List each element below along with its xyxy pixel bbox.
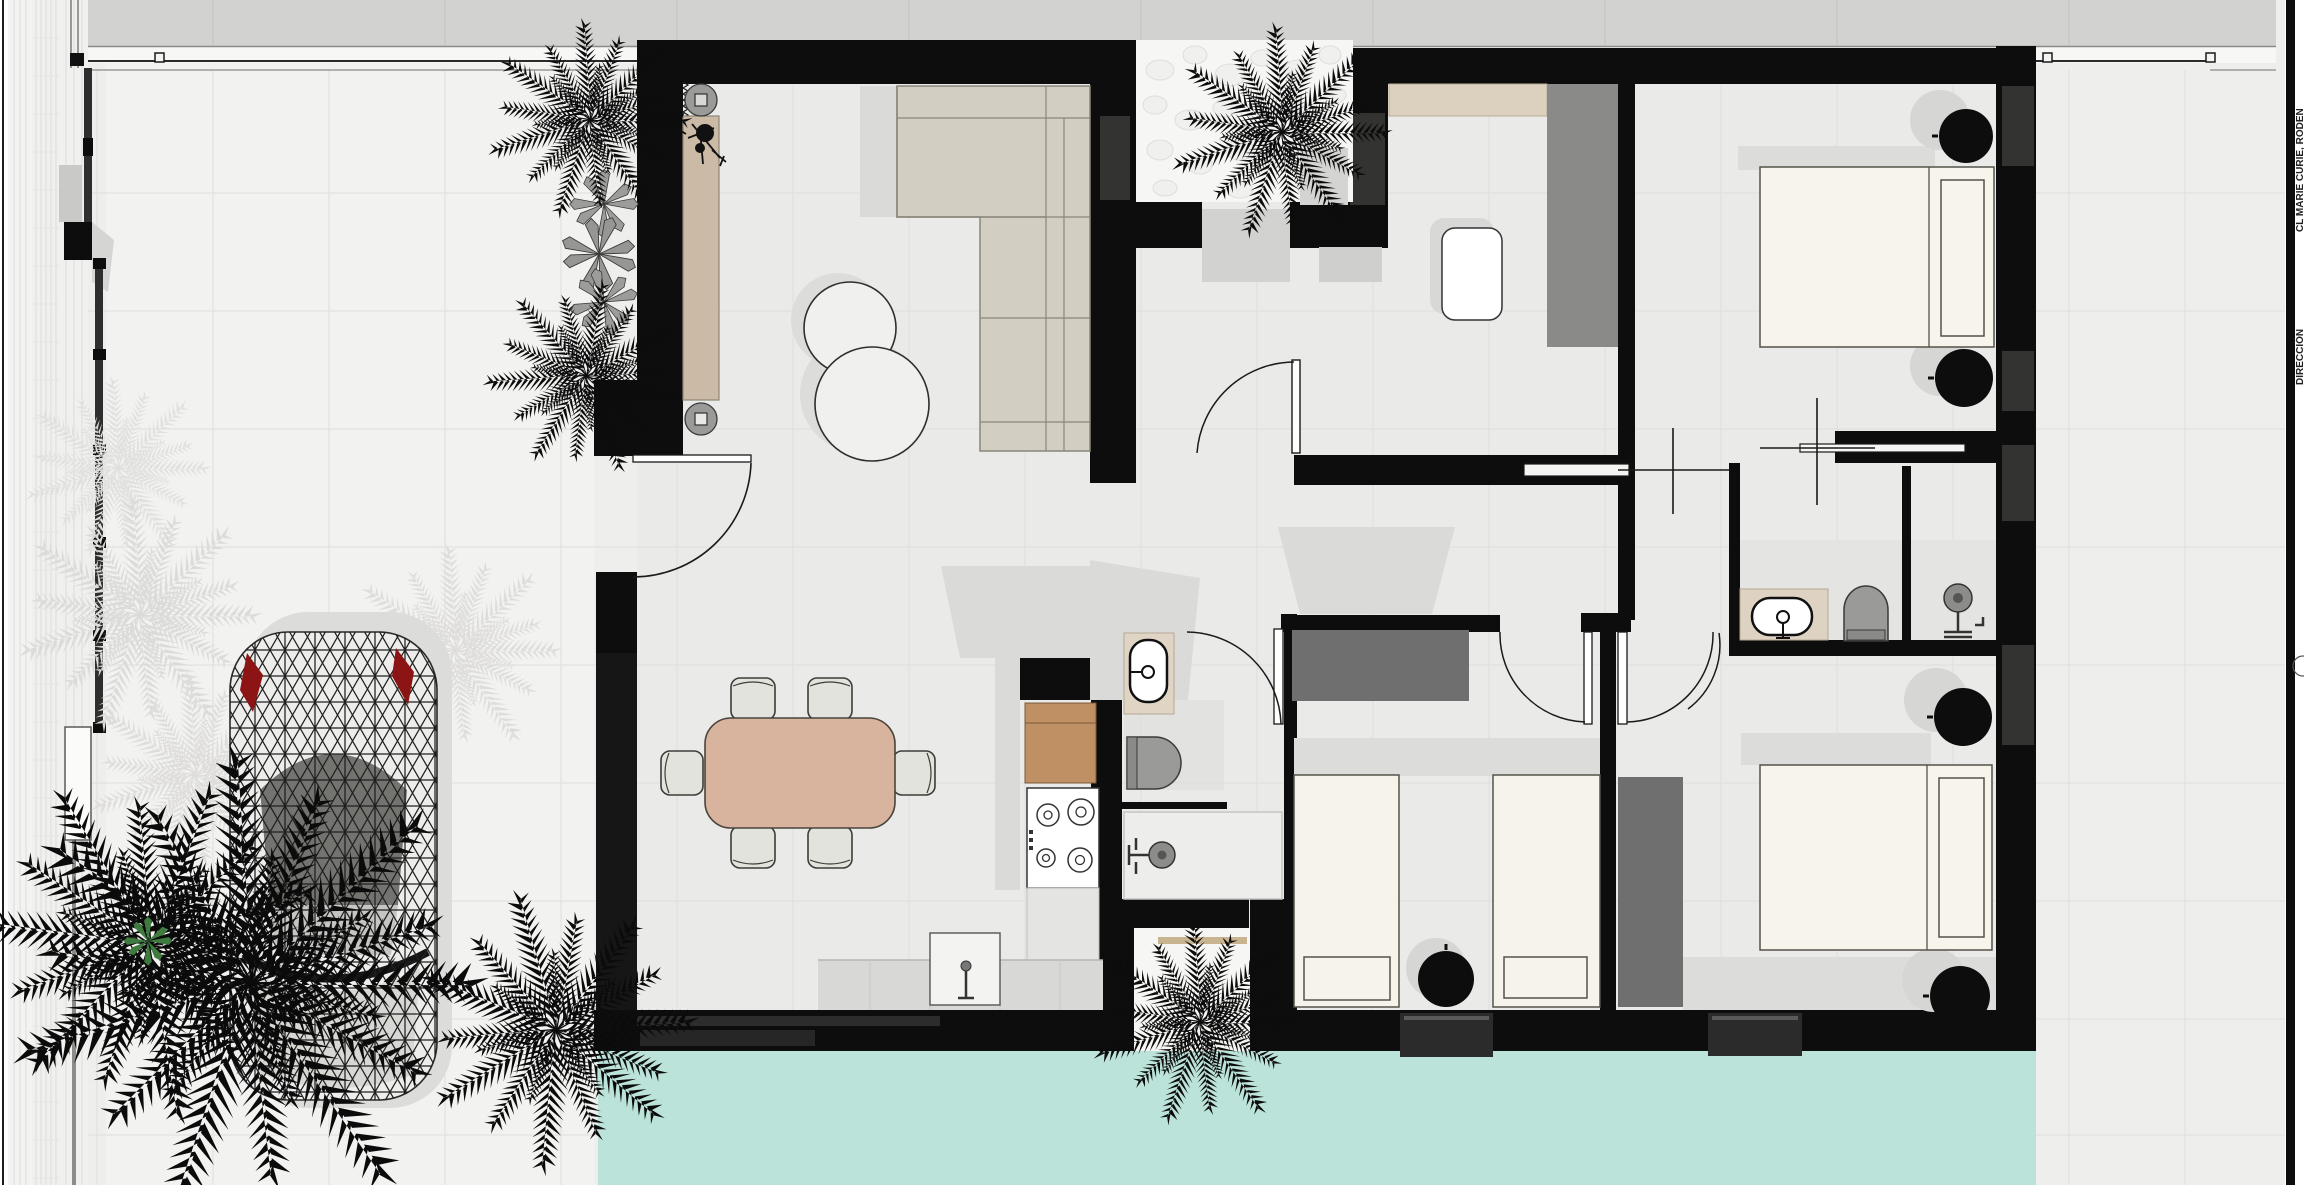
svg-text:DIRECCIÓN: DIRECCIÓN [2293, 329, 2304, 385]
svg-text:CL MARIE CURIE, RODEN: CL MARIE CURIE, RODEN [2295, 108, 2304, 232]
